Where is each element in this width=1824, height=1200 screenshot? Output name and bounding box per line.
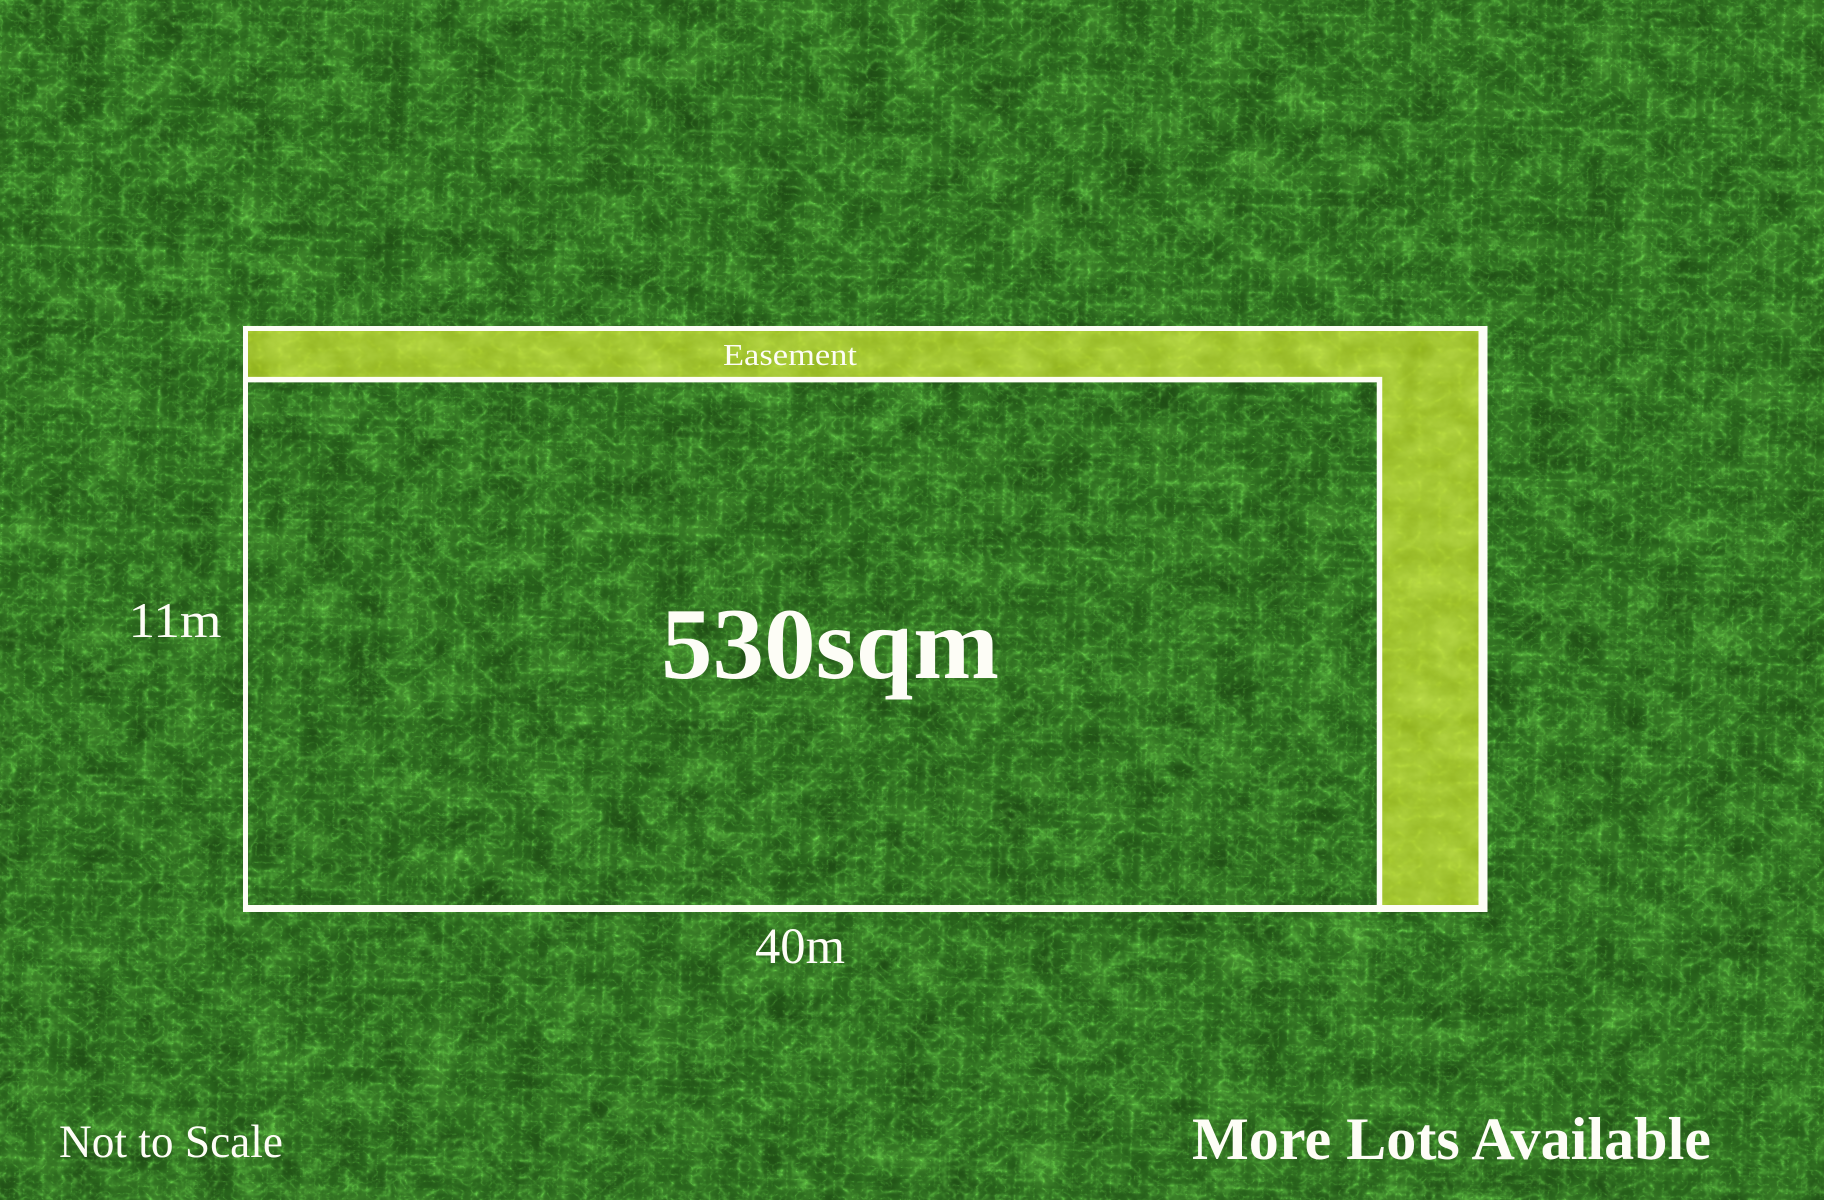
svg-text:40m: 40m bbox=[755, 919, 845, 975]
svg-text:11m: 11m bbox=[129, 592, 222, 648]
svg-text:Not to Scale: Not to Scale bbox=[59, 1116, 283, 1168]
svg-text:More Lots Available: More Lots Available bbox=[1192, 1106, 1711, 1172]
svg-text:Easement: Easement bbox=[723, 337, 857, 372]
svg-text:530sqm: 530sqm bbox=[661, 588, 999, 701]
